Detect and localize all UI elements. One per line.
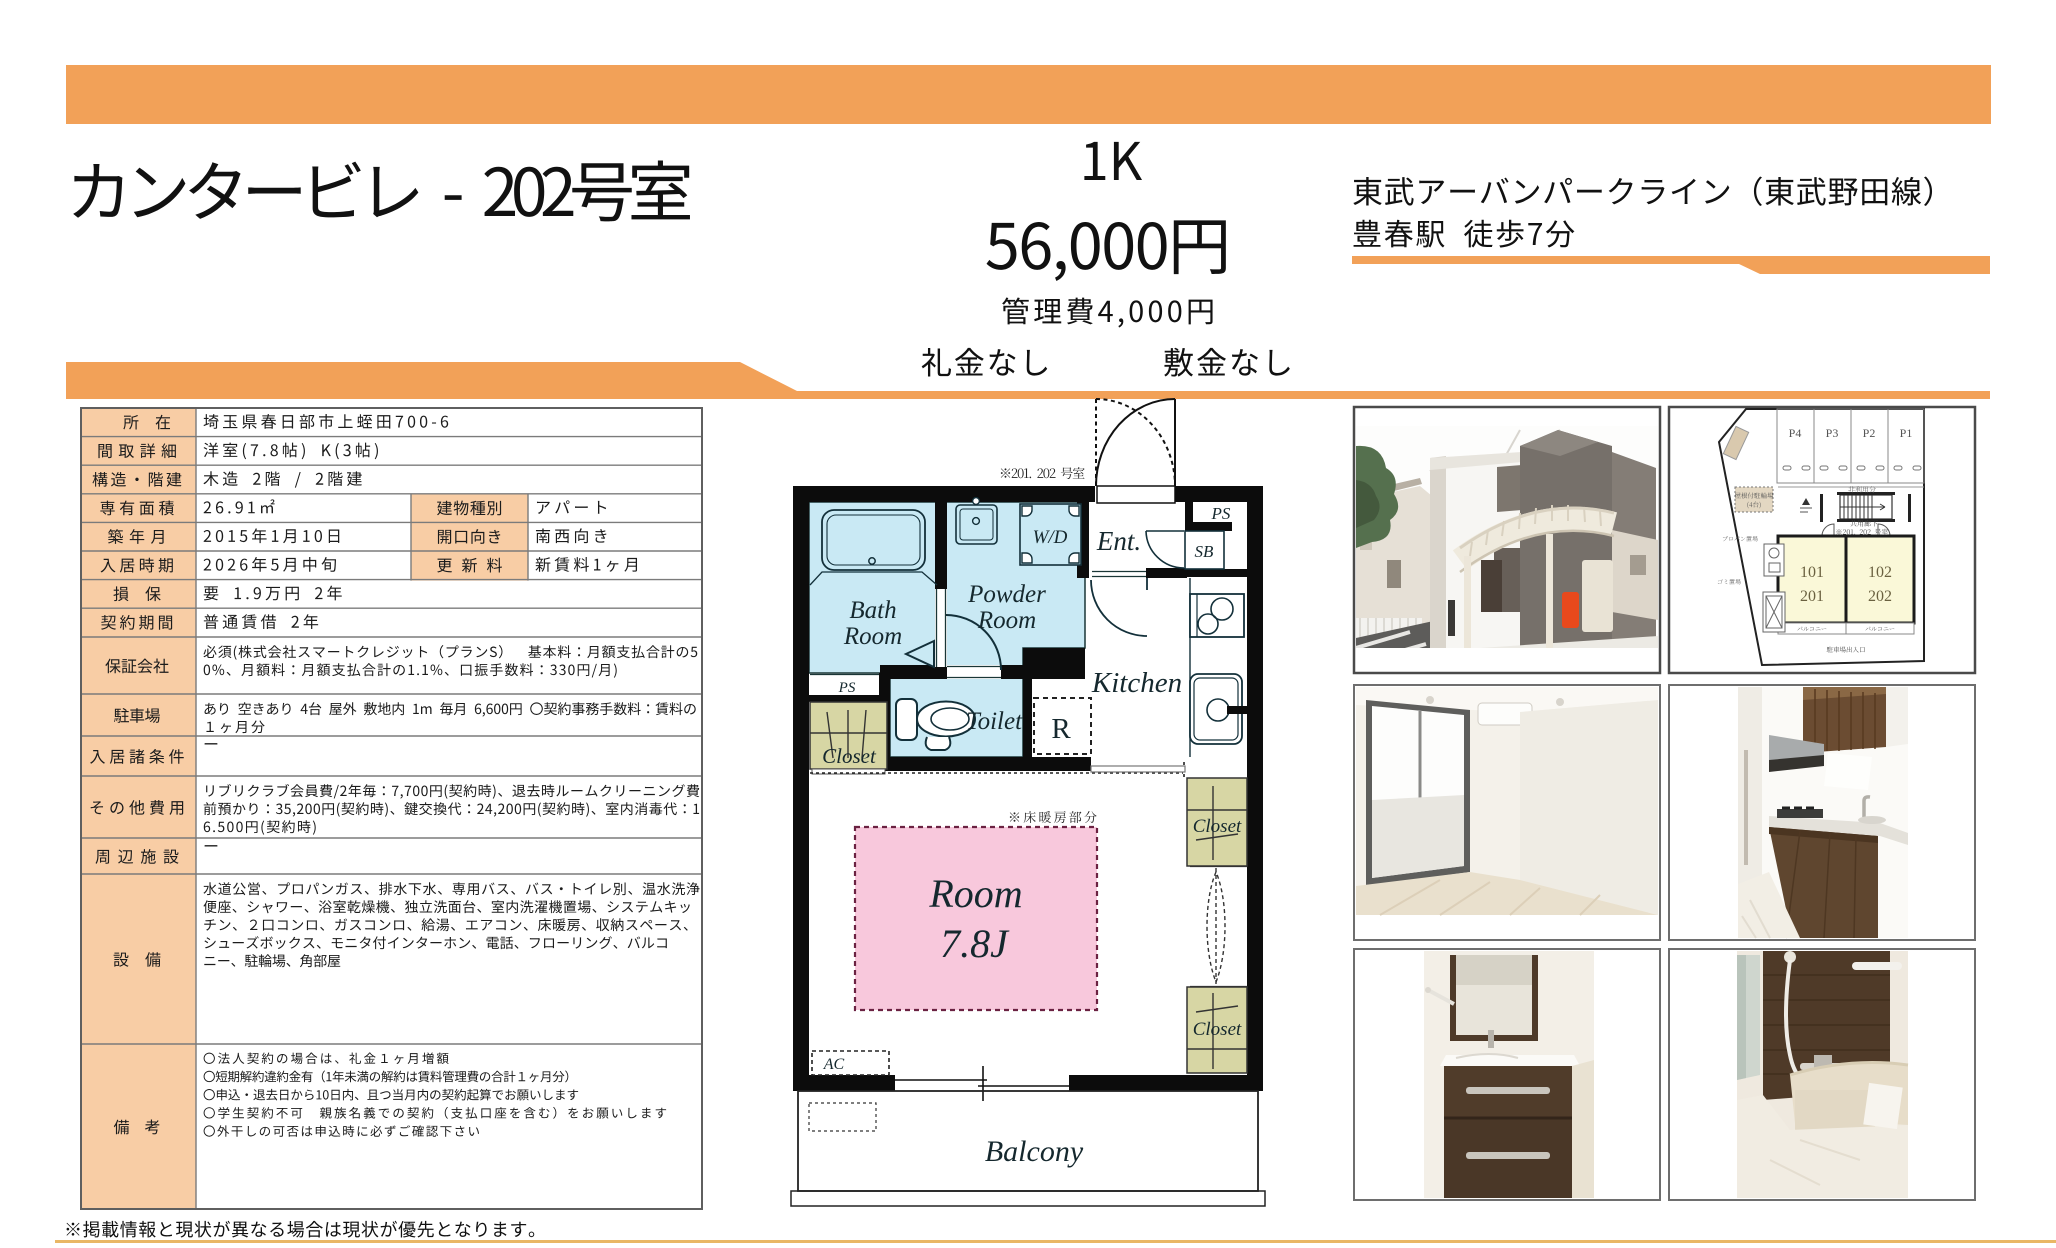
svg-text:Powder: Powder xyxy=(967,581,1046,608)
svg-text:202: 202 xyxy=(1868,588,1892,605)
svg-text:Room: Room xyxy=(928,871,1022,916)
svg-text:102: 102 xyxy=(1868,564,1892,581)
svg-text:PS: PS xyxy=(838,680,856,696)
svg-text:101: 101 xyxy=(1800,564,1824,581)
svg-text:P4: P4 xyxy=(1789,426,1802,440)
svg-text:P1: P1 xyxy=(1900,426,1913,440)
svg-text:SB: SB xyxy=(1195,542,1215,561)
svg-text:PS: PS xyxy=(1211,504,1231,523)
svg-text:201: 201 xyxy=(1800,588,1824,605)
svg-text:P2: P2 xyxy=(1863,426,1876,440)
svg-text:Room: Room xyxy=(843,623,902,650)
svg-text:Room: Room xyxy=(977,607,1036,634)
svg-text:W/D: W/D xyxy=(1033,527,1068,548)
svg-text:Closet: Closet xyxy=(1193,1019,1242,1040)
svg-text:7.8J: 7.8J xyxy=(940,921,1010,966)
svg-text:P3: P3 xyxy=(1826,426,1839,440)
svg-text:R: R xyxy=(1051,713,1071,745)
svg-text:Bath: Bath xyxy=(849,597,896,624)
svg-text:Balcony: Balcony xyxy=(985,1135,1084,1168)
svg-text:Kitchen: Kitchen xyxy=(1091,667,1182,699)
svg-text:Toilet: Toilet xyxy=(966,708,1023,735)
svg-text:Closet: Closet xyxy=(1193,816,1242,837)
svg-text:Closet: Closet xyxy=(822,744,877,768)
svg-text:Ent.: Ent. xyxy=(1096,526,1141,556)
svg-text:AC: AC xyxy=(823,1056,845,1073)
